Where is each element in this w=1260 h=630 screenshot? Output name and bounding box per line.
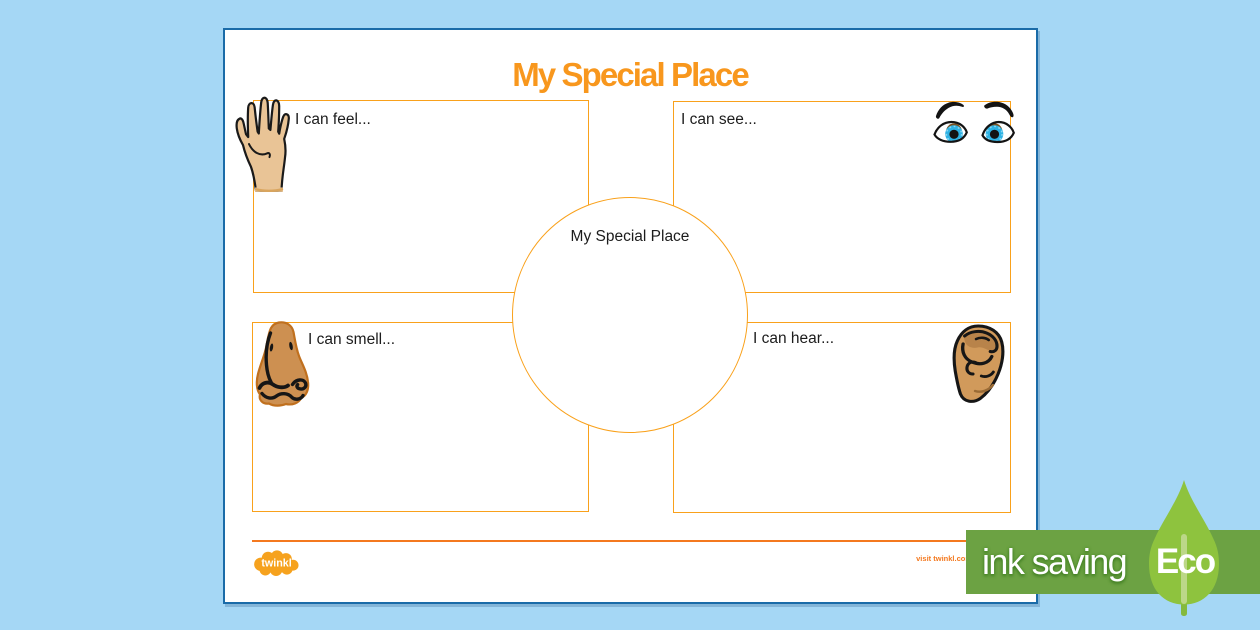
svg-text:twinkl: twinkl <box>261 558 291 570</box>
